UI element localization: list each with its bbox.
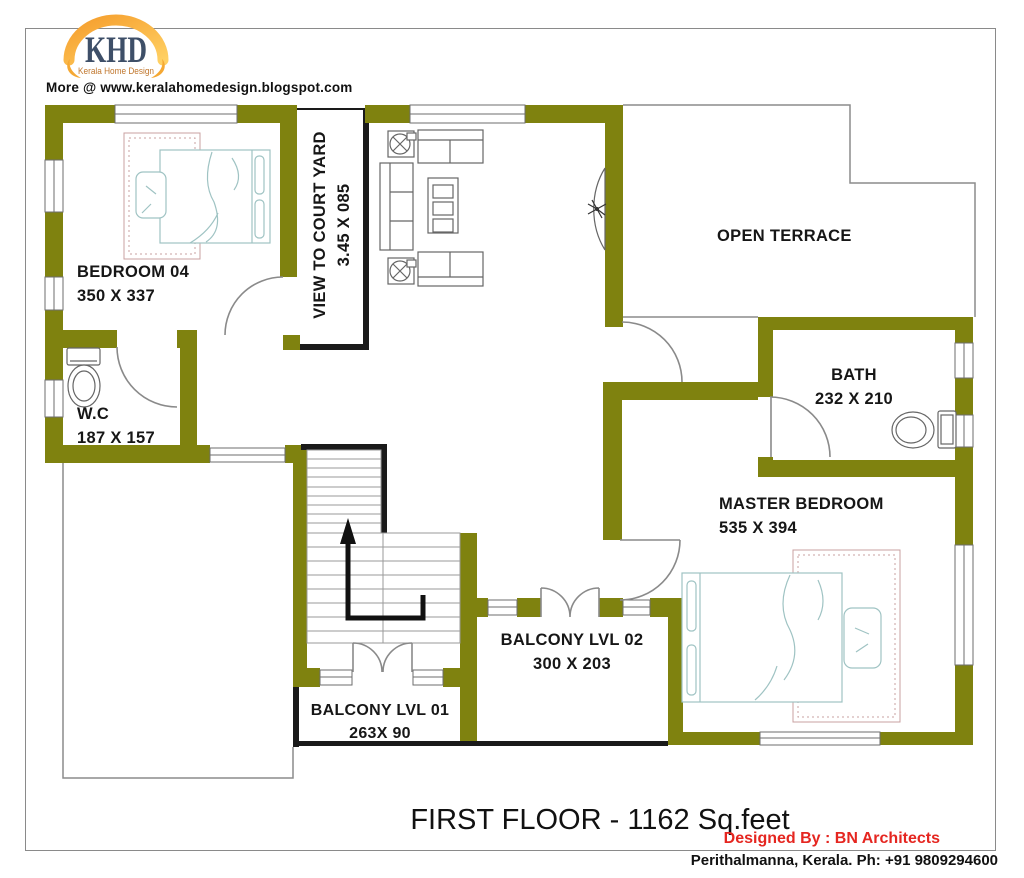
room-dims: 535 X 394 (719, 517, 884, 541)
logo-subtext: Kerala Home Design (78, 66, 154, 77)
room-dims: 300 X 203 (482, 653, 662, 677)
console-plant (588, 168, 606, 250)
room-label-balcony2: BALCONY LVL 02 300 X 203 (482, 629, 662, 677)
room-dims: 232 X 210 (790, 388, 918, 412)
source-url-line: More @ www.keralahomedesign.blogspot.com (46, 80, 352, 95)
room-label-balcony1: BALCONY LVL 01 263X 90 (296, 699, 464, 745)
bed (682, 573, 842, 702)
room-label-wc: W.C 187 X 157 (77, 403, 155, 451)
door-balcony2 (541, 588, 599, 617)
room-name: BATH (790, 364, 918, 388)
room-label-master: MASTER BEDROOM 535 X 394 (719, 493, 884, 541)
room-name: OPEN TERRACE (717, 225, 852, 249)
furniture-living-room (380, 130, 606, 286)
furniture-master-bedroom (682, 550, 900, 722)
floor-plan-page: KHD Kerala Home Design More @ www.kerala… (0, 0, 1024, 878)
toilet-wc (67, 348, 100, 407)
room-dims: 3.45 X 085 (333, 107, 357, 343)
door-living-corridor (622, 322, 682, 382)
room-name: W.C (77, 403, 155, 427)
toilet-bath (892, 411, 956, 448)
room-label-bath: BATH 232 X 210 (790, 364, 918, 412)
logo-text: KHD (85, 30, 147, 71)
room-dims: 350 X 337 (77, 285, 189, 309)
lower-yard-outline (63, 463, 293, 778)
room-label-terrace: OPEN TERRACE (717, 225, 852, 249)
sofa (380, 163, 413, 250)
pillow (136, 172, 166, 218)
room-label-bedroom04: BEDROOM 04 350 X 337 (77, 261, 189, 309)
furniture-bedroom04 (124, 133, 270, 259)
room-label-courtyard: VIEW TO COURT YARD 3.45 X 085 (309, 107, 355, 343)
khd-logo: KHD Kerala Home Design (57, 10, 175, 80)
room-name: BEDROOM 04 (77, 261, 189, 285)
room-dims: 187 X 157 (77, 427, 155, 451)
terrace-outline (623, 105, 975, 317)
door-bedroom04 (225, 277, 283, 335)
bed (160, 150, 270, 243)
room-name: BALCONY LVL 02 (482, 629, 662, 653)
door-balcony1 (353, 643, 412, 672)
room-dims: 263X 90 (296, 722, 464, 745)
pillow (844, 608, 881, 668)
room-name: BALCONY LVL 01 (296, 699, 464, 722)
door-master (620, 540, 680, 600)
room-name: VIEW TO COURT YARD (309, 107, 333, 343)
contact-line: Perithalmanna, Kerala. Ph: +91 980929460… (691, 852, 998, 869)
designer-credit: Designed By : BN Architects (724, 830, 940, 848)
door-wc (117, 347, 177, 407)
room-name: MASTER BEDROOM (719, 493, 884, 517)
